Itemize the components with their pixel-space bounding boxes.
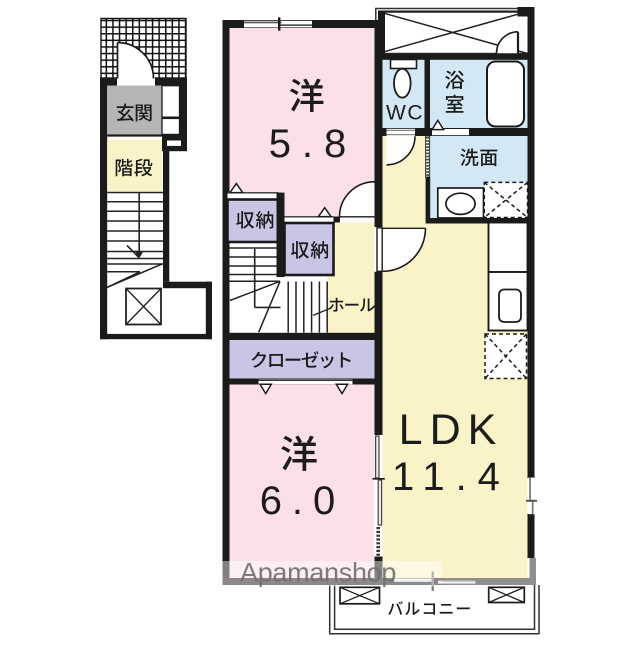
svg-text:Apamanshop: Apamanshop: [240, 558, 396, 588]
svg-text:11.4: 11.4: [392, 455, 511, 499]
svg-text:5.8: 5.8: [269, 122, 358, 166]
svg-text:WC: WC: [386, 102, 424, 125]
svg-text:LDK: LDK: [399, 406, 504, 454]
svg-text:6.0: 6.0: [260, 479, 346, 523]
